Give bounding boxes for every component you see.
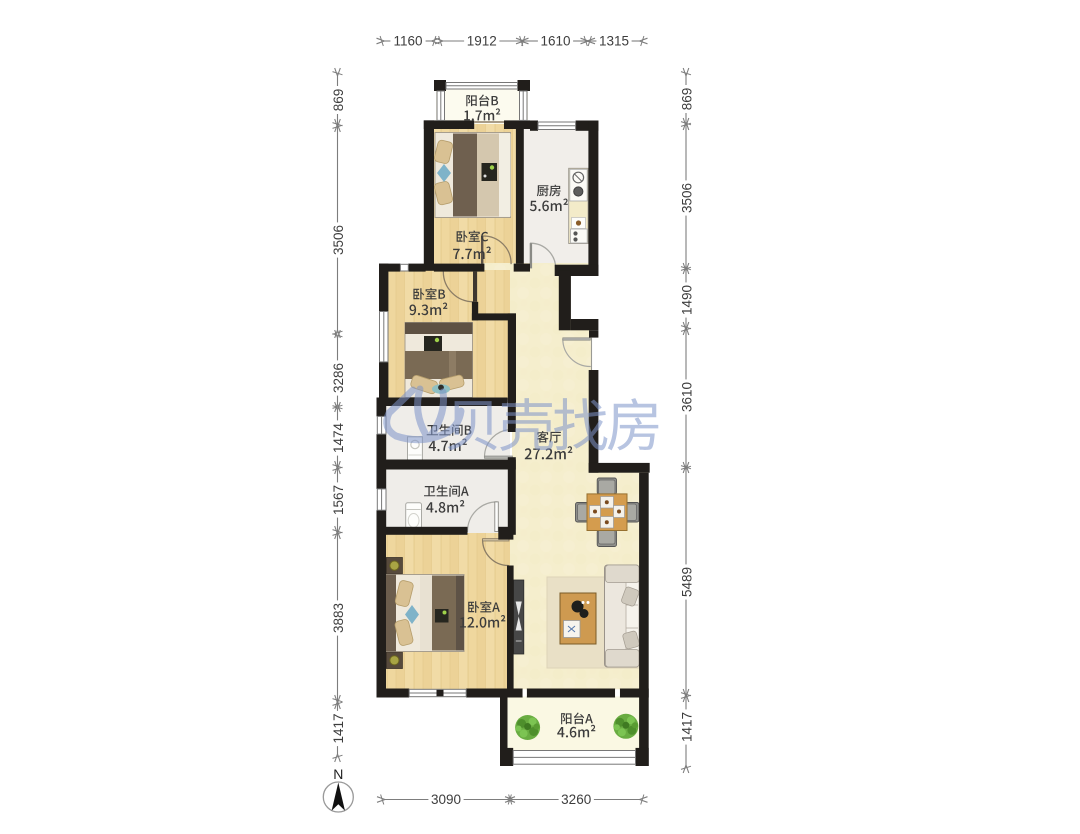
svg-text:869: 869 (331, 89, 346, 112)
svg-text:3610: 3610 (680, 382, 695, 412)
svg-text:1417: 1417 (680, 712, 695, 742)
svg-text:1160: 1160 (393, 34, 422, 49)
svg-text:3090: 3090 (431, 792, 461, 807)
svg-text:1474: 1474 (331, 422, 346, 453)
svg-text:1315: 1315 (599, 34, 629, 49)
svg-text:1610: 1610 (540, 34, 570, 49)
svg-text:N: N (333, 766, 343, 782)
svg-text:3883: 3883 (331, 603, 346, 633)
svg-text:1417: 1417 (331, 713, 346, 743)
svg-text:3506: 3506 (331, 225, 346, 255)
svg-text:3506: 3506 (680, 183, 695, 213)
svg-text:1912: 1912 (467, 34, 497, 49)
svg-text:1567: 1567 (331, 485, 346, 515)
svg-text:3286: 3286 (331, 363, 346, 393)
svg-text:3260: 3260 (561, 792, 591, 807)
svg-text:5489: 5489 (680, 567, 695, 597)
svg-text:1490: 1490 (680, 285, 695, 315)
svg-text:869: 869 (680, 88, 695, 111)
